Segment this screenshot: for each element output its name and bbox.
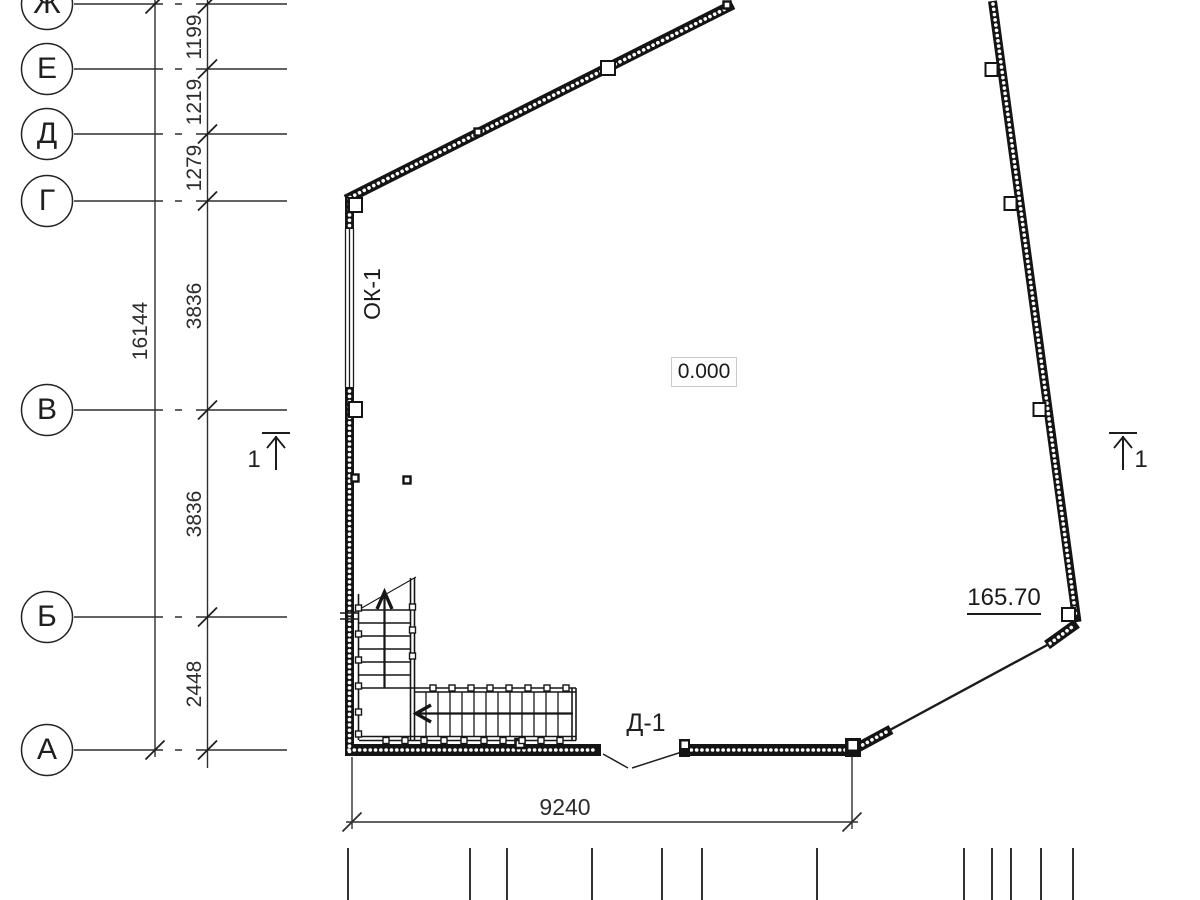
window-se-diagonal (889, 644, 1049, 731)
stair-up-arrow (377, 592, 392, 688)
dim-total-16144: 16144 (129, 289, 153, 373)
bottom-ruler-ticks (348, 848, 1073, 900)
stairs (340, 577, 576, 744)
axis-label-b: Б (25, 599, 69, 635)
window-ok1 (346, 229, 354, 387)
axis-label-a: А (25, 732, 69, 768)
dim-seg-1279: 1279 (183, 126, 207, 210)
axis-label-e: Е (25, 51, 69, 87)
floor-plan-canvas: Ж Е Д Г В Б А 1199 1219 1279 3836 3836 2… (0, 0, 1200, 900)
axis-row-lines (74, 4, 287, 750)
axis-label-v: В (25, 392, 69, 428)
dim-seg-3836a: 3836 (183, 264, 207, 348)
floor-level-box: 0.000 (671, 357, 737, 387)
section-number-right: 1 (1130, 446, 1152, 474)
elevation-mark: 165.70 (967, 584, 1041, 615)
axis-label-d: Д (25, 116, 69, 152)
dim-seg-3836b: 3836 (183, 472, 207, 556)
door-label-d1: Д-1 (615, 709, 677, 738)
section-number-left: 1 (243, 446, 265, 474)
dim-bottom-9240: 9240 (515, 794, 615, 821)
stair-left-arrow (416, 705, 573, 722)
floor-plan-drawing (0, 0, 1200, 900)
door-d1-leaves (603, 750, 688, 768)
section-mark-left (262, 433, 290, 470)
dim-seg-2448: 2448 (183, 642, 207, 726)
axis-label-g: Г (25, 183, 69, 219)
window-label-ok1: ОК-1 (360, 252, 384, 336)
axis-label-zh: Ж (25, 0, 69, 22)
